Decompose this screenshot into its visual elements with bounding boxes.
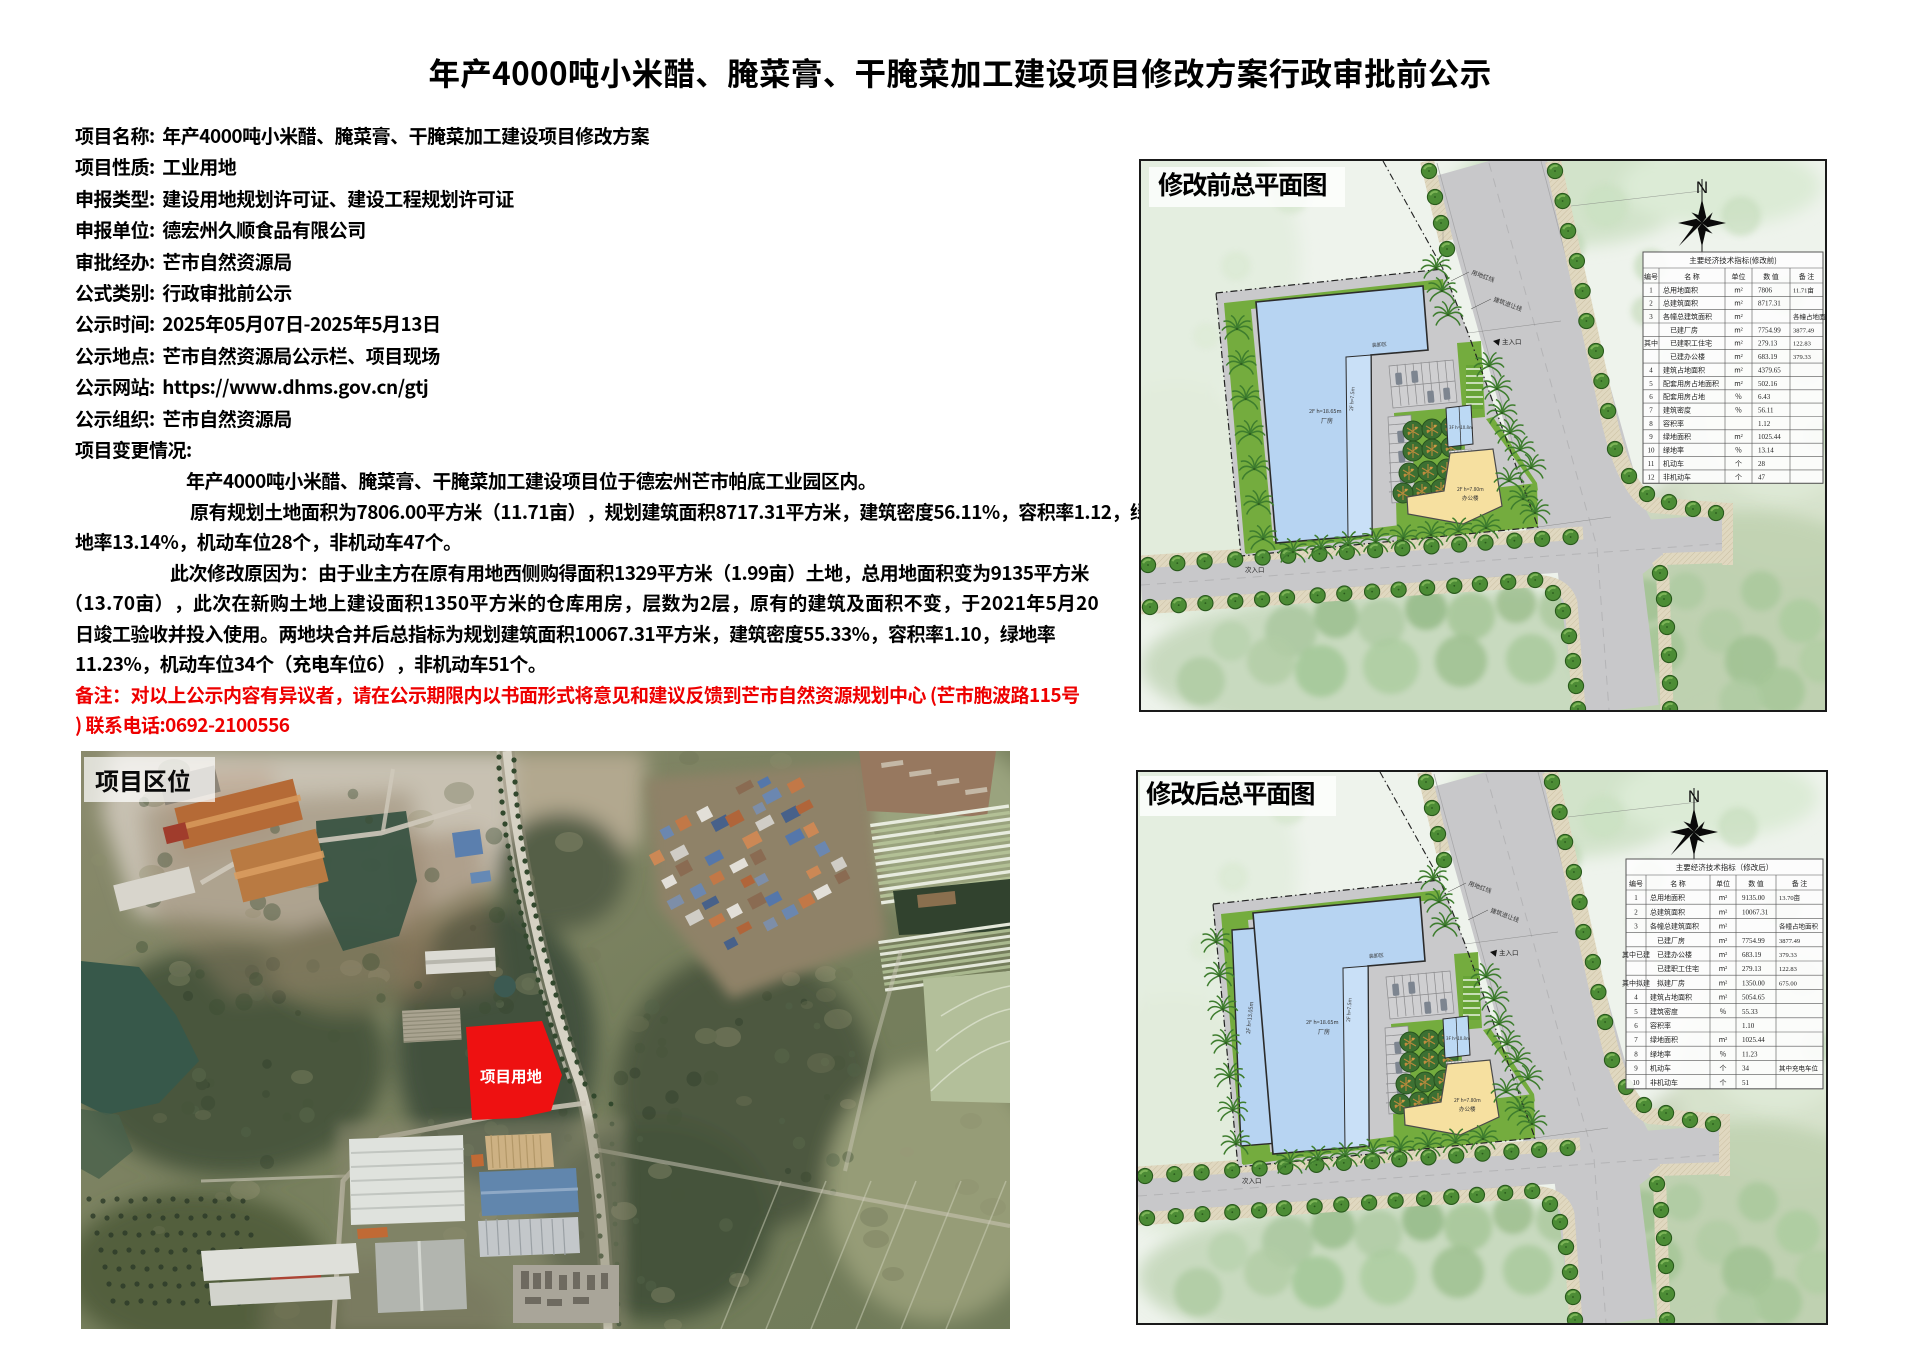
svg-text:m²: m² [1719, 978, 1728, 988]
svg-text:1.12: 1.12 [1758, 420, 1771, 428]
svg-text:2F h=7.80m: 2F h=7.80m [1457, 486, 1484, 493]
svg-text:1350.00: 1350.00 [1742, 979, 1765, 987]
svg-text:绿地率: 绿地率 [1663, 446, 1684, 456]
svg-text:51: 51 [1742, 1079, 1750, 1087]
svg-text:名 称: 名 称 [1670, 879, 1686, 889]
svg-text:%: % [1735, 446, 1742, 456]
svg-text:m²: m² [1719, 893, 1728, 903]
svg-text:机动车: 机动车 [1663, 459, 1684, 469]
svg-text:已建厂房: 已建厂房 [1650, 936, 1685, 946]
svg-text:13.14: 13.14 [1758, 447, 1774, 455]
svg-text:279.13: 279.13 [1758, 340, 1778, 348]
svg-text:56.11: 56.11 [1758, 407, 1774, 415]
svg-text:个: 个 [1735, 459, 1742, 469]
svg-text:编号: 编号 [1629, 879, 1643, 889]
svg-text:%: % [1735, 406, 1742, 416]
svg-text:容积率: 容积率 [1650, 1021, 1671, 1031]
svg-text:683.19: 683.19 [1742, 951, 1762, 959]
svg-text:m²: m² [1734, 312, 1743, 322]
svg-text:%: % [1720, 1007, 1727, 1017]
svg-text:总建筑面积: 总建筑面积 [1663, 299, 1698, 309]
svg-text:279.13: 279.13 [1742, 965, 1762, 973]
svg-text:m²: m² [1719, 993, 1728, 1003]
svg-text:配套用房占地: 配套用房占地 [1663, 392, 1705, 402]
svg-text:1025.44: 1025.44 [1758, 433, 1781, 441]
svg-text:9: 9 [1649, 433, 1653, 441]
svg-text:总用地面积: 总用地面积 [1650, 893, 1685, 903]
svg-text:建筑密度: 建筑密度 [1650, 1007, 1678, 1017]
svg-text:m²: m² [1734, 339, 1743, 349]
svg-text:3F h=10.8m: 3F h=10.8m [1449, 424, 1473, 431]
svg-text:10067.31: 10067.31 [1742, 908, 1769, 916]
svg-text:m²: m² [1719, 907, 1728, 917]
svg-text:3: 3 [1634, 923, 1638, 931]
svg-text:m²: m² [1719, 922, 1728, 932]
svg-text:m²: m² [1734, 365, 1743, 375]
svg-text:1025.44: 1025.44 [1742, 1036, 1765, 1044]
svg-text:6.43: 6.43 [1758, 393, 1771, 401]
svg-text:379.33: 379.33 [1779, 952, 1797, 959]
svg-text:其中: 其中 [1644, 339, 1658, 348]
svg-text:容积率: 容积率 [1663, 419, 1684, 429]
svg-text:6: 6 [1634, 1022, 1638, 1030]
svg-text:装卸区: 装卸区 [1372, 341, 1388, 349]
svg-text:备 注: 备 注 [1799, 272, 1815, 282]
svg-text:机动车: 机动车 [1650, 1064, 1671, 1074]
svg-text:13.70亩: 13.70亩 [1779, 893, 1801, 902]
svg-text:8: 8 [1634, 1050, 1638, 1058]
svg-text:55.33: 55.33 [1742, 1008, 1758, 1016]
svg-text:1: 1 [1649, 286, 1653, 294]
svg-text:主要经济技术指标(修改前): 主要经济技术指标(修改前) [1689, 255, 1777, 266]
svg-text:9: 9 [1634, 1065, 1638, 1073]
svg-text:项目区位: 项目区位 [95, 762, 191, 797]
svg-text:总用地面积: 总用地面积 [1663, 285, 1698, 295]
svg-text:12: 12 [1648, 473, 1656, 481]
svg-text:办公楼: 办公楼 [1459, 1105, 1476, 1113]
svg-text:名 称: 名 称 [1684, 272, 1700, 282]
svg-text:单位: 单位 [1732, 272, 1746, 282]
svg-text:%: % [1720, 1049, 1727, 1059]
svg-text:修改后总平面图: 修改后总平面图 [1146, 774, 1314, 811]
svg-text:已建办公楼: 已建办公楼 [1650, 950, 1692, 960]
svg-text:主要经济技术指标（修改后）: 主要经济技术指标（修改后） [1676, 862, 1774, 873]
svg-text:8: 8 [1649, 420, 1653, 428]
svg-text:7: 7 [1649, 407, 1653, 415]
svg-text:项目用地: 项目用地 [480, 1065, 543, 1087]
svg-text:主入口: 主入口 [1499, 947, 1519, 957]
svg-text:9135.00: 9135.00 [1742, 894, 1765, 902]
svg-text:m²: m² [1734, 432, 1743, 442]
svg-text:绿地面积: 绿地面积 [1650, 1035, 1678, 1045]
svg-text:2F h=18.65m: 2F h=18.65m [1309, 407, 1342, 415]
svg-text:已建厂房: 已建厂房 [1663, 325, 1698, 335]
svg-text:7754.99: 7754.99 [1758, 326, 1781, 334]
svg-text:绿地面积: 绿地面积 [1663, 432, 1691, 442]
svg-text:8717.31: 8717.31 [1758, 300, 1781, 308]
svg-text:3: 3 [1649, 313, 1653, 321]
svg-text:3F h=10.8m: 3F h=10.8m [1446, 1035, 1470, 1042]
svg-text:非机动车: 非机动车 [1663, 472, 1691, 482]
svg-text:已建办公楼: 已建办公楼 [1663, 352, 1705, 362]
svg-text:122.83: 122.83 [1793, 341, 1811, 348]
svg-text:2F h=7.80m: 2F h=7.80m [1454, 1097, 1481, 1104]
svg-text:379.33: 379.33 [1793, 354, 1811, 361]
svg-text:502.16: 502.16 [1758, 380, 1778, 388]
svg-text:建筑占地面积: 建筑占地面积 [1650, 993, 1692, 1003]
svg-text:683.19: 683.19 [1758, 353, 1778, 361]
svg-text:各幢占地面积: 各幢占地面积 [1779, 922, 1819, 931]
svg-text:m²: m² [1719, 964, 1728, 974]
svg-text:3877.49: 3877.49 [1793, 327, 1814, 334]
svg-text:47: 47 [1758, 473, 1766, 481]
svg-text:m²: m² [1734, 325, 1743, 335]
svg-text:1: 1 [1634, 894, 1638, 902]
svg-text:m²: m² [1734, 379, 1743, 389]
svg-text:配套用房占地面积: 配套用房占地面积 [1663, 379, 1719, 389]
svg-text:2F h=18.65m: 2F h=18.65m [1306, 1018, 1339, 1026]
svg-text:个: 个 [1720, 1078, 1727, 1088]
svg-text:m²: m² [1719, 936, 1728, 946]
svg-text:主入口: 主入口 [1502, 336, 1522, 346]
svg-text:2: 2 [1649, 300, 1653, 308]
svg-text:6: 6 [1649, 393, 1653, 401]
svg-text:厂房: 厂房 [1318, 1027, 1330, 1036]
svg-text:4: 4 [1649, 366, 1653, 374]
svg-text:修改前总平面图: 修改前总平面图 [1158, 165, 1326, 202]
svg-text:建筑密度: 建筑密度 [1663, 406, 1691, 416]
svg-text:m²: m² [1719, 1035, 1728, 1045]
svg-text:个: 个 [1720, 1064, 1727, 1074]
svg-text:拟建厂房: 拟建厂房 [1650, 978, 1685, 988]
svg-text:已建职工住宅: 已建职工住宅 [1663, 339, 1712, 349]
svg-text:3877.49: 3877.49 [1779, 938, 1800, 945]
svg-text:各幢总建筑面积: 各幢总建筑面积 [1650, 922, 1699, 932]
svg-text:备 注: 备 注 [1792, 879, 1808, 889]
svg-text:m²: m² [1734, 299, 1743, 309]
svg-text:11.71亩: 11.71亩 [1793, 285, 1814, 294]
svg-text:675.00: 675.00 [1779, 980, 1797, 987]
svg-text:122.83: 122.83 [1779, 966, 1797, 973]
svg-text:m²: m² [1719, 950, 1728, 960]
svg-text:m²: m² [1734, 285, 1743, 295]
svg-text:办公楼: 办公楼 [1462, 494, 1479, 502]
svg-text:数 值: 数 值 [1748, 879, 1764, 889]
svg-text:10: 10 [1648, 447, 1656, 455]
svg-text:7: 7 [1634, 1036, 1638, 1044]
svg-text:总建筑面积: 总建筑面积 [1650, 907, 1685, 917]
svg-text:5: 5 [1634, 1008, 1638, 1016]
svg-text:m²: m² [1734, 352, 1743, 362]
svg-text:编号: 编号 [1644, 272, 1658, 282]
svg-text:28: 28 [1758, 460, 1766, 468]
svg-text:%: % [1735, 392, 1742, 402]
svg-text:11: 11 [1648, 460, 1655, 468]
svg-text:11.23: 11.23 [1742, 1050, 1758, 1058]
svg-text:绿地率: 绿地率 [1650, 1049, 1671, 1059]
svg-text:已建职工住宅: 已建职工住宅 [1650, 964, 1699, 974]
svg-text:34: 34 [1742, 1065, 1750, 1073]
svg-text:4379.65: 4379.65 [1758, 366, 1781, 374]
svg-text:2: 2 [1634, 908, 1638, 916]
svg-text:4: 4 [1634, 994, 1638, 1002]
svg-text:5: 5 [1649, 380, 1653, 388]
svg-text:数 值: 数 值 [1763, 272, 1779, 282]
svg-text:装卸区: 装卸区 [1369, 952, 1385, 960]
svg-text:厂房: 厂房 [1321, 416, 1333, 425]
svg-text:建筑占地面积: 建筑占地面积 [1663, 365, 1705, 375]
svg-text:个: 个 [1735, 472, 1742, 482]
svg-text:7754.99: 7754.99 [1742, 937, 1765, 945]
svg-text:10: 10 [1633, 1079, 1641, 1087]
svg-text:单位: 单位 [1716, 879, 1730, 889]
svg-text:1.10: 1.10 [1742, 1022, 1755, 1030]
svg-text:5054.65: 5054.65 [1742, 994, 1765, 1002]
svg-text:其中充电车位: 其中充电车位 [1779, 1064, 1819, 1073]
svg-text:7806: 7806 [1758, 286, 1773, 294]
svg-text:各幢总建筑面积: 各幢总建筑面积 [1663, 312, 1712, 322]
svg-text:非机动车: 非机动车 [1650, 1078, 1678, 1088]
svg-text:各幢占地面积: 各幢占地面积 [1793, 312, 1825, 321]
